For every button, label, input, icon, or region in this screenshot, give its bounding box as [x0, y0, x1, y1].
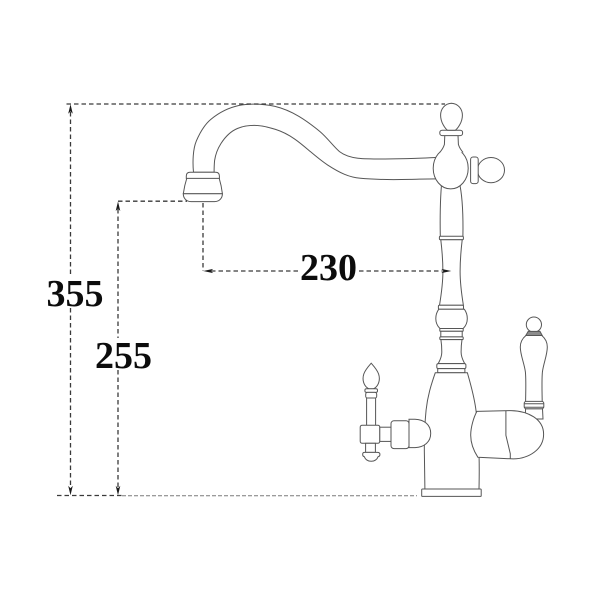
svg-text:255: 255	[95, 335, 152, 377]
svg-text:230: 230	[300, 247, 357, 289]
svg-text:355: 355	[47, 273, 104, 315]
